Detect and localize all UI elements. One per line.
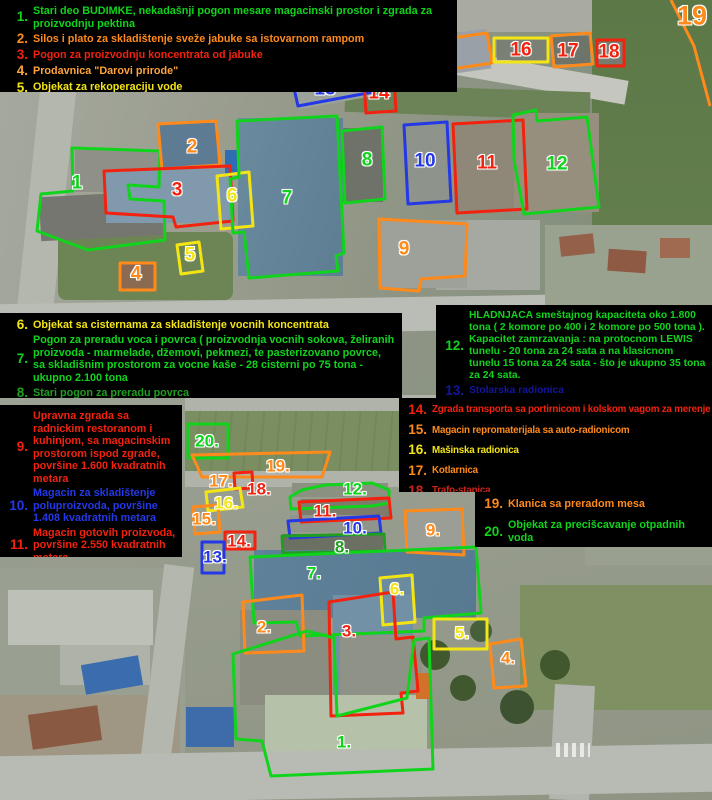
legend-number-7: 7. <box>6 352 28 366</box>
legend-text-19: Klanica sa preradom mesa <box>508 498 645 511</box>
building-roof <box>186 707 234 747</box>
map-label-1-top: 1 <box>72 174 83 193</box>
building-roof <box>340 635 422 697</box>
map-label-13-bottom: 13. <box>203 549 227 566</box>
building-roof <box>292 483 388 497</box>
legend-text-1: Stari deo BUDIMKE, nekadašnji pogon mesa… <box>33 5 451 30</box>
legend-number-2: 2. <box>6 32 28 46</box>
legend-text-7: Pogon za preradu voca i povrca ( proizvo… <box>33 334 396 384</box>
house-roof <box>660 238 690 258</box>
legend-items-14-18: 14. Zgrada transporta sa portirnicom i k… <box>399 398 712 492</box>
legend-number-19: 19. <box>481 497 503 511</box>
legend-number-18: 18. <box>405 484 427 492</box>
legend-items-1-5: 1. Stari deo BUDIMKE, nekadašnji pogon m… <box>0 0 457 92</box>
legend-number-9: 9. <box>6 440 28 454</box>
map-label-8-top: 8 <box>362 151 373 170</box>
legend-row-1: 1. Stari deo BUDIMKE, nekadašnji pogon m… <box>6 5 451 30</box>
map-label-18-bottom: 18. <box>247 481 271 498</box>
map-label-10-top: 10 <box>414 152 435 171</box>
legend-row-11: 11. Magacin gotovih proizvoda, površine … <box>6 527 176 557</box>
legend-text-8: Stari pogon za preradu povrca <box>33 387 189 398</box>
house-roof <box>607 249 646 274</box>
legend-row-13: 13. Stolarska radionica <box>442 384 706 398</box>
building-roof <box>106 169 231 223</box>
map-label-2-top: 2 <box>187 138 198 157</box>
tree <box>420 640 450 670</box>
legend-row-10: 10. Magacin za skladištenje poluproizvod… <box>6 487 176 525</box>
map-label-19-top: 19 <box>677 3 707 30</box>
legend-text-17: Kotlarnica <box>432 465 478 476</box>
legend-text-3: Pogon za proizvodnju koncentrata od jabu… <box>33 49 263 62</box>
legend-text-13: Stolarska radionica <box>469 385 564 397</box>
legend-row-20: 20. Objekat za precišcavanje otpadnih vo… <box>481 519 706 544</box>
legend-row-18: 18. Trafo-stanica <box>405 484 706 492</box>
shipping-container <box>416 673 430 699</box>
legend-number-4: 4. <box>6 64 28 78</box>
legend-number-15: 15. <box>405 423 427 437</box>
legend-text-12: HLADNJACA smeštajnog kapaciteta oko 1.80… <box>469 310 706 382</box>
legend-number-5: 5. <box>6 81 28 92</box>
legend-number-20: 20. <box>481 525 503 539</box>
map-label-16-top: 16 <box>510 41 531 60</box>
map-label-12-top: 12 <box>546 155 567 174</box>
legend-number-12: 12. <box>442 339 464 353</box>
legend-row-2: 2. Silos i plato za skladištenje sveže j… <box>6 32 451 46</box>
legend-text-2: Silos i plato za skladištenje sveže jabu… <box>33 33 364 46</box>
legend-items-6-8: 6. Objekat sa cisternama za skladištenje… <box>0 313 402 398</box>
legend-number-17: 17. <box>405 464 427 478</box>
legend-text-20: Objekat za precišcavanje otpadnih voda <box>508 519 706 544</box>
map-label-5-top: 5 <box>185 246 196 265</box>
map-label-3-bottom: 3. <box>342 623 356 640</box>
legend-items-12-13: 12. HLADNJACA smeštajnog kapaciteta oko … <box>436 305 712 398</box>
legend-text-6: Objekat sa cisternama za skladištenje vo… <box>33 319 329 332</box>
annotated-aerial-map: 1 2 3 4 5 6 7 8 9 10 11 12 13 14 15 16 1… <box>0 0 712 800</box>
legend-text-11: Magacin gotovih proizvoda, površine 2.55… <box>33 527 176 557</box>
legend-text-5: Objekat za rekoperaciju vode <box>33 81 182 92</box>
house-roof <box>559 233 595 256</box>
map-label-2-bottom: 2. <box>257 619 271 636</box>
legend-row-16: 16. Mašinska radionica <box>405 443 706 457</box>
legend-number-3: 3. <box>6 48 28 62</box>
legend-number-8: 8. <box>6 386 28 398</box>
map-label-20-bottom: 20. <box>195 433 219 450</box>
map-label-9-top: 9 <box>399 240 410 259</box>
industrial-strip <box>455 0 592 32</box>
legend-number-16: 16. <box>405 443 427 457</box>
legend-row-3: 3. Pogon za proizvodnju koncentrata od j… <box>6 48 451 62</box>
legend-text-4: Prodavnica "Darovi prirode" <box>33 65 178 78</box>
legend-text-14: Zgrada transporta sa portirnicom i kolsk… <box>432 404 710 415</box>
map-label-9-bottom: 9. <box>426 522 440 539</box>
map-label-19-bottom: 19. <box>266 458 290 475</box>
map-label-18-top: 18 <box>598 43 619 62</box>
map-label-3-top: 3 <box>172 181 183 200</box>
legend-row-8: 8. Stari pogon za preradu povrca <box>6 386 396 398</box>
legend-text-16: Mašinska radionica <box>432 445 519 456</box>
map-label-14-bottom: 14. <box>227 533 251 550</box>
tree <box>500 690 534 724</box>
legend-row-6: 6. Objekat sa cisternama za skladištenje… <box>6 318 396 332</box>
tree <box>470 620 492 642</box>
legend-row-5: 5. Objekat za rekoperaciju vode <box>6 81 451 92</box>
map-label-5-bottom: 5. <box>455 625 469 642</box>
map-label-11-bottom: 11. <box>314 503 337 520</box>
building-roof <box>381 220 467 288</box>
map-label-8-bottom: 8. <box>335 539 349 556</box>
map-label-4-top: 4 <box>131 265 142 284</box>
map-label-1-bottom: 1. <box>337 734 351 751</box>
legend-text-15: Magacin repromaterijala sa auto-radionic… <box>432 425 629 436</box>
tree <box>540 650 570 680</box>
legend-text-10: Magacin za skladištenje poluproizvoda, p… <box>33 487 176 525</box>
legend-row-17: 17. Kotlarnica <box>405 464 706 478</box>
map-label-12-bottom: 12. <box>343 481 367 498</box>
legend-number-13: 13. <box>442 384 464 398</box>
legend-number-10: 10. <box>6 499 28 513</box>
legend-row-12: 12. HLADNJACA smeštajnog kapaciteta oko … <box>442 310 706 382</box>
warehouse-roof <box>8 590 153 645</box>
map-label-6-top: 6 <box>227 187 238 206</box>
legend-items-9-11: 9. Upravna zgrada sa radnickim restorano… <box>0 405 182 557</box>
legend-row-9: 9. Upravna zgrada sa radnickim restorano… <box>6 410 176 485</box>
legend-row-19: 19. Klanica sa preradom mesa <box>481 497 706 511</box>
crosswalk <box>556 743 590 757</box>
map-label-4-bottom: 4. <box>501 650 515 667</box>
legend-row-15: 15. Magacin repromaterijala sa auto-radi… <box>405 423 706 437</box>
map-label-6-bottom: 6. <box>390 581 404 598</box>
map-label-7-top: 7 <box>282 189 293 208</box>
map-label-17-bottom: 17. <box>209 473 233 490</box>
legend-items-19-20: 19. Klanica sa preradom mesa 20. Objekat… <box>475 492 712 547</box>
legend-row-7: 7. Pogon za preradu voca i povrca ( proi… <box>6 334 396 384</box>
map-label-11-top: 11 <box>477 154 497 173</box>
legend-number-6: 6. <box>6 318 28 332</box>
legend-number-1: 1. <box>6 10 28 24</box>
legend-row-14: 14. Zgrada transporta sa portirnicom i k… <box>405 403 706 417</box>
map-label-7-bottom: 7. <box>307 565 321 582</box>
legend-text-18: Trafo-stanica <box>432 485 490 492</box>
legend-number-11: 11. <box>6 538 28 552</box>
map-label-16-bottom: 16. <box>214 495 238 512</box>
map-label-10-bottom: 10. <box>343 520 367 537</box>
legend-text-9: Upravna zgrada sa radnickim restoranom i… <box>33 410 176 485</box>
legend-row-4: 4. Prodavnica "Darovi prirode" <box>6 64 451 78</box>
park-area <box>520 585 712 710</box>
map-label-15-bottom: 15. <box>192 511 216 528</box>
tree <box>450 675 476 701</box>
legend-number-14: 14. <box>405 403 427 417</box>
map-label-17-top: 17 <box>557 42 578 61</box>
old-building-roof <box>240 610 330 705</box>
